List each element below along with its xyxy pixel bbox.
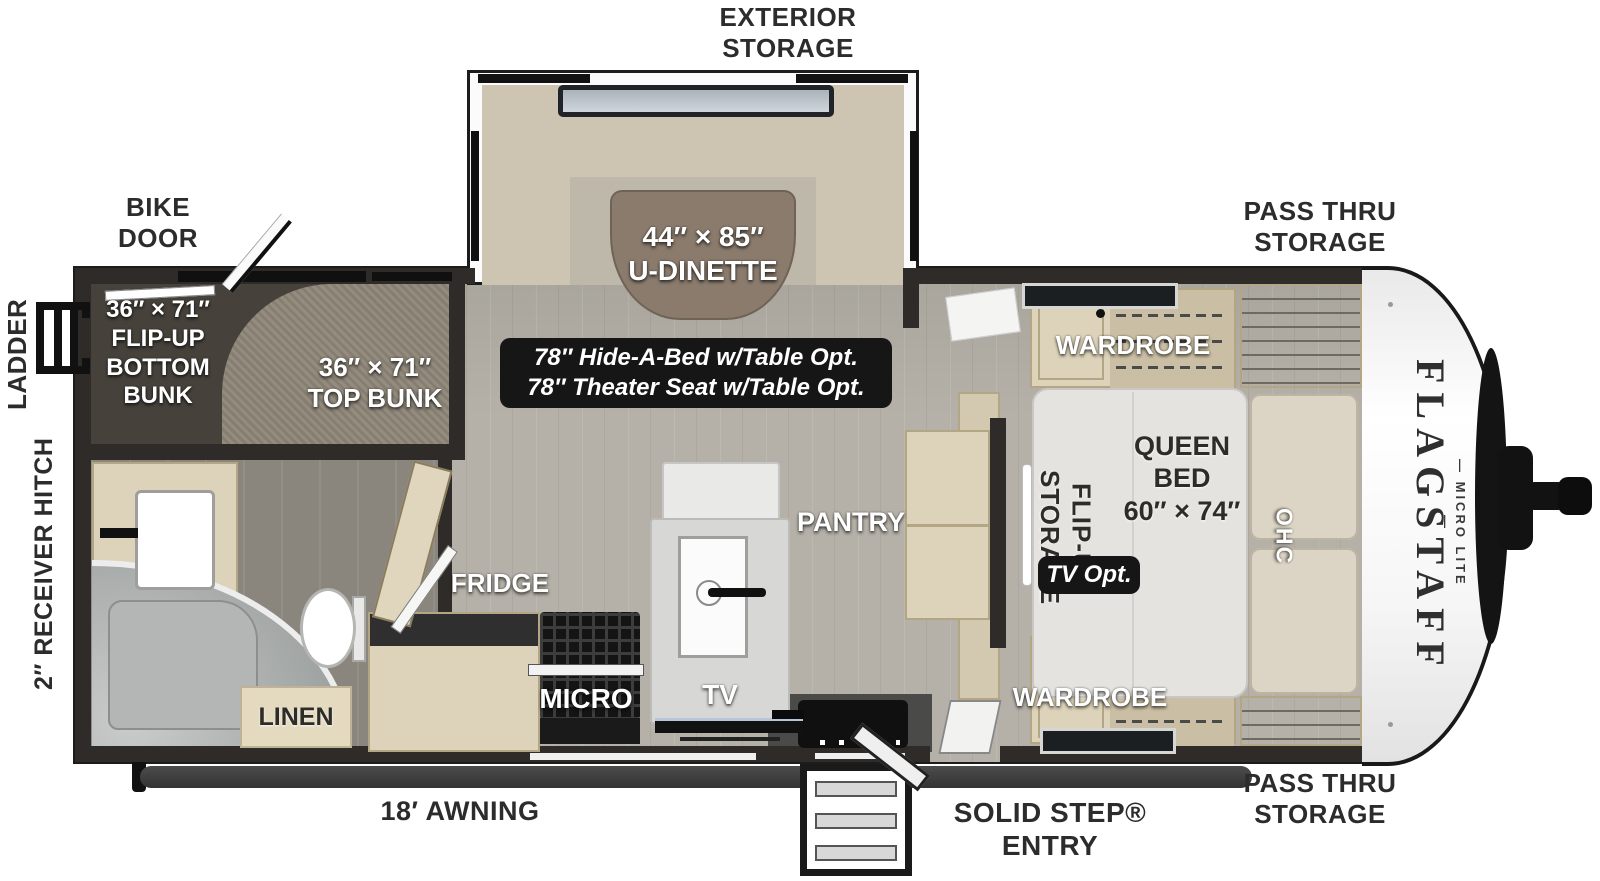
ohc-cabinet-top xyxy=(1240,284,1362,388)
fridge xyxy=(368,612,540,752)
label-flip-up-storage: FLIP-UP STORAGE xyxy=(1034,425,1096,650)
entry-steps-icon xyxy=(800,764,912,876)
bedroom-window-top xyxy=(1022,283,1178,309)
ohc-cabinet-bottom xyxy=(1240,696,1362,746)
label-linen: LINEN xyxy=(242,702,350,732)
awning-roll xyxy=(140,766,1252,788)
window-crank xyxy=(1096,309,1105,318)
hitch-jack-icon xyxy=(1558,477,1592,515)
label-tv: TV xyxy=(688,678,752,712)
overhead-shelf xyxy=(945,287,1021,341)
cap-rivet-top xyxy=(1388,302,1393,307)
wall-slideout-jamb xyxy=(903,268,919,328)
label-fridge: FRIDGE xyxy=(438,568,562,599)
range-base xyxy=(540,718,640,744)
propane-cover-icon xyxy=(1497,446,1533,550)
label-exterior-storage: EXTERIOR STORAGE xyxy=(700,2,876,63)
brand-micro-lite: — MICRO LITE — xyxy=(1448,448,1468,598)
slideout-side-window-right xyxy=(910,131,918,261)
bedroom-divider-wall xyxy=(990,418,1006,648)
label-solid-step-entry: SOLID STEP® ENTRY xyxy=(940,796,1160,862)
tv-screen-icon xyxy=(655,718,803,733)
tv-option-badge: TV Opt. xyxy=(1038,556,1140,594)
label-queen-bed: QUEEN BED 60″ × 74″ xyxy=(1092,430,1272,527)
wall-bunk-bath xyxy=(75,444,465,460)
pillow-bottom xyxy=(1250,548,1358,694)
ladder-icon xyxy=(36,302,88,374)
label-awning: 18′ AWNING xyxy=(360,796,560,828)
flip-up-storage-door xyxy=(1022,464,1032,586)
floorplan-canvas: EXTERIOR STORAGE BIKE DOOR PASS THRU STO… xyxy=(0,0,1600,881)
label-ladder: LADDER xyxy=(2,270,36,438)
slideout-roof-trim-right xyxy=(796,74,908,83)
label-micro: MICRO xyxy=(526,682,646,716)
kitchen-window xyxy=(530,753,756,760)
wall-top-front xyxy=(911,268,1375,284)
label-pass-thru-storage-bottom: PASS THRU STORAGE xyxy=(1238,768,1402,829)
slideout-roof-trim-left xyxy=(478,74,590,83)
shower-pan xyxy=(108,600,258,730)
bath-sink xyxy=(135,490,215,590)
bunk-window-2 xyxy=(372,272,452,281)
label-pantry: PANTRY xyxy=(790,506,912,538)
oven-handle xyxy=(528,664,644,676)
label-bike-door: BIKE DOOR xyxy=(110,192,206,253)
pantry-cabinet xyxy=(905,430,990,620)
tv-stand xyxy=(680,737,780,741)
bunk-window xyxy=(178,271,366,282)
island-handle xyxy=(708,588,766,597)
label-ohc: OHC xyxy=(1270,482,1298,592)
slideout-window xyxy=(558,85,834,117)
toilet xyxy=(300,588,356,668)
bath-faucet-icon xyxy=(100,528,138,538)
label-receiver-hitch: 2″ RECEIVER HITCH xyxy=(30,418,64,710)
tv-island-top xyxy=(662,462,780,524)
kitchen-faucet-icon xyxy=(772,710,804,719)
wall-bunk-right xyxy=(449,268,465,460)
cap-rivet-bottom xyxy=(1388,722,1393,727)
hide-a-bed-option-badge: 78″ Hide-A-Bed w/Table Opt. 78″ Theater … xyxy=(500,338,892,408)
label-flip-up-bottom-bunk: 36″ × 71″ FLIP-UP BOTTOM BUNK xyxy=(89,296,227,411)
label-u-dinette: 44″ × 85″ U-DINETTE xyxy=(610,220,796,287)
label-wardrobe-bottom: WARDROBE xyxy=(995,682,1185,713)
label-wardrobe-top: WARDROBE xyxy=(1038,330,1228,361)
slideout-side-window-left xyxy=(471,131,479,261)
label-top-bunk: 36″ × 71″ TOP BUNK xyxy=(300,352,450,414)
bedroom-window-bottom xyxy=(1040,728,1176,754)
label-pass-thru-storage-top: PASS THRU STORAGE xyxy=(1238,196,1402,257)
